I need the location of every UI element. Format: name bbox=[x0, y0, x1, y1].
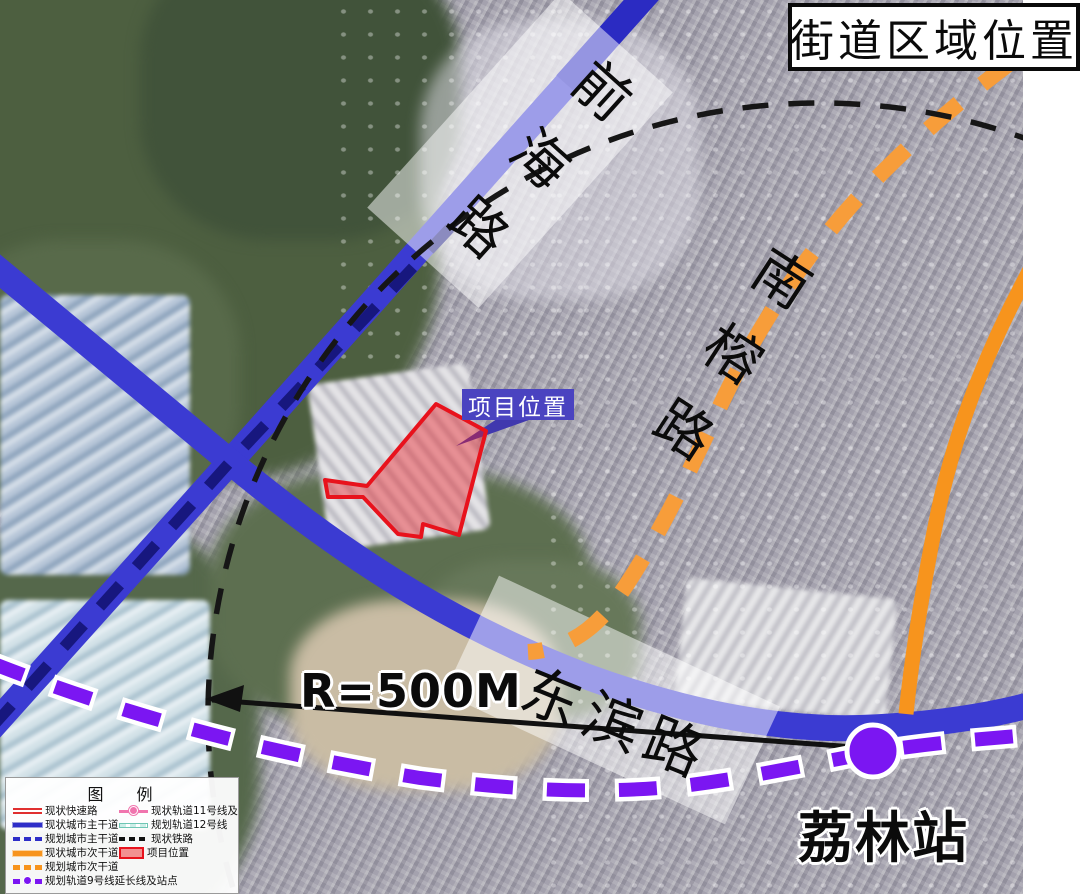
legend-label: 现状轨道11号线及站点 bbox=[151, 806, 239, 817]
secondary-road-existing-swatch-icon bbox=[13, 851, 42, 856]
legend-label: 现状铁路 bbox=[151, 834, 193, 845]
project-location-tag: 项目位置 bbox=[462, 389, 574, 420]
expressway-existing-swatch-icon bbox=[13, 808, 42, 814]
legend-item: 现状城市主干道 bbox=[13, 818, 125, 832]
metro-line12-swatch-icon bbox=[119, 823, 148, 828]
legend-item: 现状快速路 bbox=[13, 804, 125, 818]
map-title: 街道区域位置 bbox=[788, 3, 1080, 71]
metro-line11-swatch-icon bbox=[119, 810, 148, 813]
legend-label: 现状城市次干道 bbox=[45, 848, 119, 859]
legend: 图 例 现状快速路 现状城市主干道 规划城市主干道 现状城市次干道 bbox=[5, 777, 239, 894]
existing-secondary-road bbox=[906, 266, 1023, 714]
map-canvas: 前海路 南榕路 东滨路 R=500M 荔林站 项目位置 图 例 现状快速路 现状… bbox=[0, 0, 1023, 894]
legend-label: 规划轨道12号线 bbox=[151, 820, 227, 831]
legend-title: 图 例 bbox=[16, 781, 238, 805]
project-site-swatch-icon bbox=[119, 847, 144, 859]
legend-item: 规划城市次干道 bbox=[13, 860, 125, 874]
legend-label: 项目位置 bbox=[147, 848, 189, 859]
planning-map-figure: 前海路 南榕路 东滨路 R=500M 荔林站 项目位置 图 例 现状快速路 现状… bbox=[0, 0, 1080, 894]
legend-label: 规划城市主干道 bbox=[45, 834, 119, 845]
project-site-polygon bbox=[325, 404, 486, 537]
main-road-planned-swatch-icon bbox=[13, 837, 42, 841]
legend-label: 现状城市主干道 bbox=[45, 820, 119, 831]
metro-line9-swatch-icon bbox=[13, 879, 42, 884]
radius-label: R=500M bbox=[300, 664, 522, 718]
legend-item: 规划城市主干道 bbox=[13, 832, 125, 846]
legend-right-column: 现状轨道11号线及站点 规划轨道12号线 现状铁路 项目位置 bbox=[119, 804, 239, 860]
legend-item: 规划轨道9号线延长线及站点 bbox=[13, 874, 125, 888]
legend-item: 现状轨道11号线及站点 bbox=[119, 804, 239, 818]
legend-item: 项目位置 bbox=[119, 846, 239, 860]
legend-item: 规划轨道12号线 bbox=[119, 818, 239, 832]
railway-existing-swatch-icon bbox=[119, 837, 148, 841]
secondary-road-planned-swatch-icon bbox=[13, 865, 42, 870]
station-label: 荔林站 bbox=[798, 793, 969, 873]
legend-label: 规划轨道9号线延长线及站点 bbox=[45, 876, 178, 887]
legend-label: 规划城市次干道 bbox=[45, 862, 119, 873]
legend-label: 现状快速路 bbox=[45, 806, 98, 817]
legend-left-column: 现状快速路 现状城市主干道 规划城市主干道 现状城市次干道 规划城市次干道 bbox=[13, 804, 125, 888]
legend-item: 现状城市次干道 bbox=[13, 846, 125, 860]
main-road-existing-swatch-icon bbox=[13, 823, 42, 827]
station-marker-icon bbox=[847, 725, 899, 777]
legend-item: 现状铁路 bbox=[119, 832, 239, 846]
